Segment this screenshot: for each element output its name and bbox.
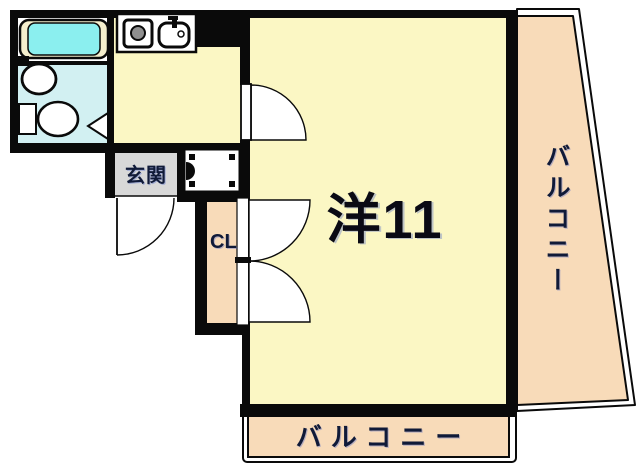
bathtub-icon — [28, 23, 100, 55]
washbasin-icon — [22, 64, 56, 94]
toilet-tank-icon — [19, 104, 36, 134]
stove-burner-icon — [131, 26, 145, 40]
kitchen-counter — [117, 14, 196, 52]
pan-corner — [229, 154, 235, 160]
wall-bath-bottom — [10, 143, 115, 153]
pan-corner — [189, 154, 195, 160]
wall-right — [506, 10, 517, 417]
door-leaf — [241, 84, 251, 140]
main-room-label: 洋11 — [283, 168, 487, 260]
closet-door-meeting-mark — [235, 257, 251, 263]
washing-machine-pan-icon — [184, 149, 240, 192]
wall-entrance-divider — [177, 150, 183, 193]
wall-top — [10, 10, 517, 18]
closet-label: CL — [210, 231, 234, 293]
toilet-icon — [38, 102, 78, 136]
wall-entrance-left — [105, 143, 115, 198]
entrance-label: 玄関 — [115, 152, 177, 194]
wall-closet-left — [195, 192, 207, 327]
wall-left — [10, 10, 18, 153]
entrance-door-swing-arc — [117, 198, 174, 255]
balcony-right-label: バルコニー — [528, 126, 584, 314]
wall-kitchen-room-upper — [240, 40, 250, 85]
floor-plan: 玄関 CL 洋11 バルコニー バルコニー — [0, 0, 640, 473]
bath-faucet-icon — [18, 56, 29, 66]
pan-corner — [189, 181, 195, 187]
sink-faucet-arm-icon — [168, 16, 178, 20]
pan-corner — [229, 181, 235, 187]
wall-room-left-lower — [242, 330, 250, 410]
balcony-bottom-label: バルコニー — [250, 415, 510, 456]
sink-drain-icon — [178, 31, 184, 37]
